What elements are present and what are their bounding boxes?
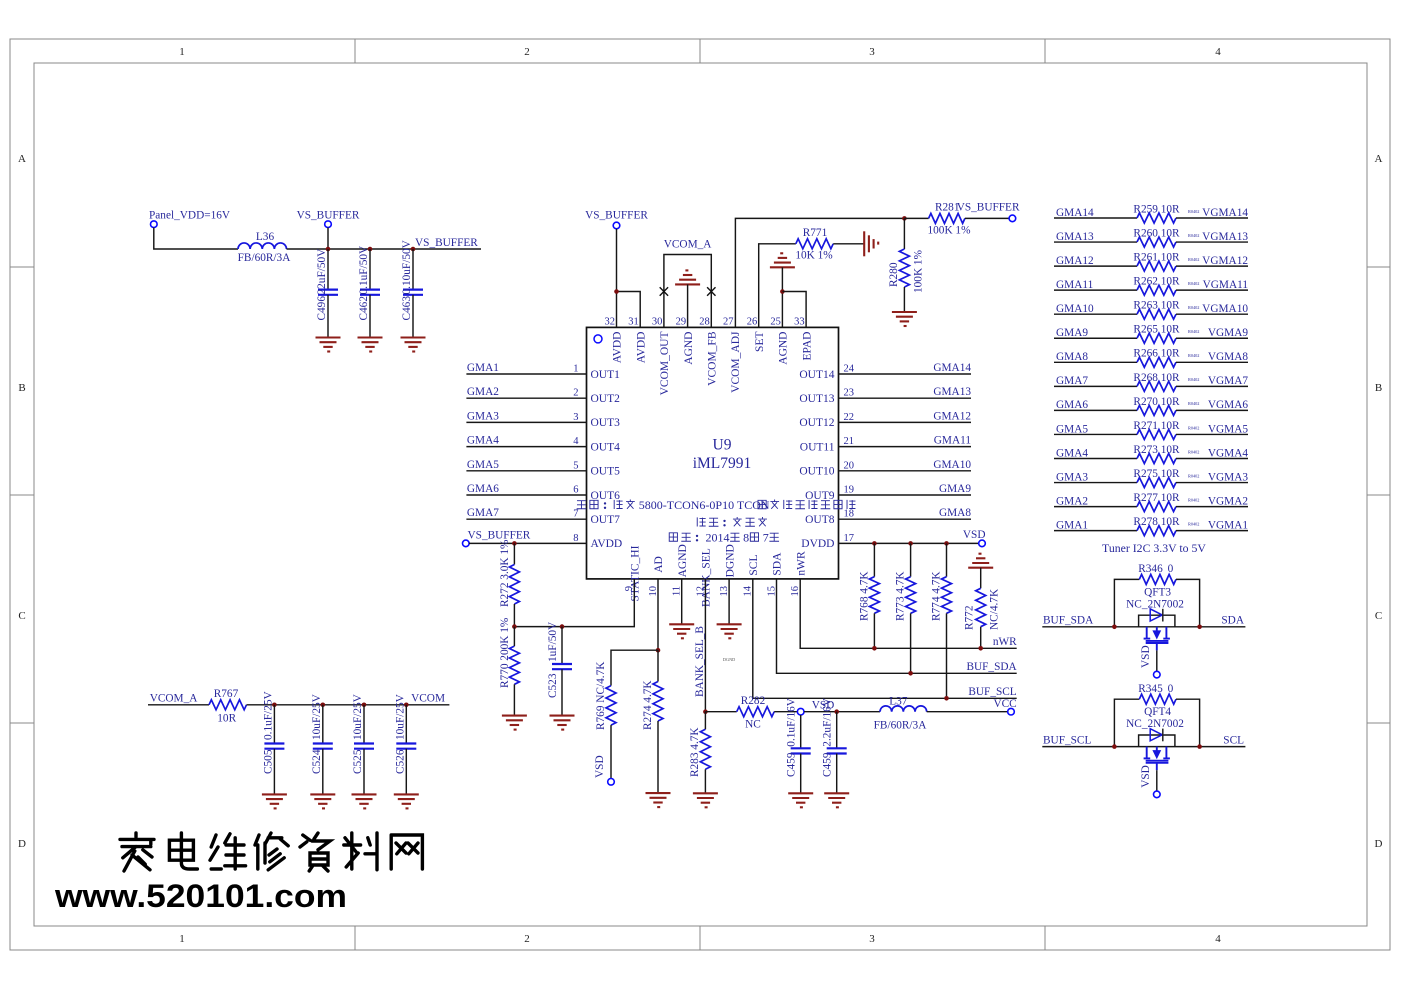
svg-text:C523: C523 <box>547 673 559 698</box>
svg-text:R0402: R0402 <box>1188 521 1199 526</box>
svg-text:D: D <box>18 838 26 850</box>
svg-text:NC: NC <box>745 719 761 731</box>
svg-text:R262 10R: R262 10R <box>1133 276 1180 288</box>
svg-text:4: 4 <box>1215 46 1221 58</box>
svg-text:VGMA1: VGMA1 <box>1208 519 1248 531</box>
svg-text:R0402: R0402 <box>1188 401 1199 406</box>
svg-text:OUT13: OUT13 <box>799 393 834 405</box>
svg-text:SDA: SDA <box>1221 615 1244 627</box>
svg-text:C459: C459 <box>822 752 834 777</box>
svg-text:VCOM_ADJ: VCOM_ADJ <box>730 331 742 393</box>
svg-text:SCL: SCL <box>748 555 760 576</box>
svg-text:DVDD: DVDD <box>801 538 834 550</box>
svg-text:22: 22 <box>844 412 855 423</box>
svg-text:VGMA2: VGMA2 <box>1208 495 1249 507</box>
svg-text:GMA2: GMA2 <box>1056 495 1088 507</box>
svg-text:DGND: DGND <box>724 544 736 577</box>
svg-text:100K 1%: 100K 1% <box>928 225 972 237</box>
svg-text:27: 27 <box>723 317 734 328</box>
svg-text:C496: C496 <box>316 296 328 321</box>
svg-text:R0402: R0402 <box>1188 257 1199 262</box>
svg-text:4: 4 <box>1215 933 1221 945</box>
svg-text:6: 6 <box>573 485 578 496</box>
svg-text:R773 4.7K: R773 4.7K <box>895 571 907 621</box>
svg-text:1: 1 <box>573 364 578 375</box>
svg-text:VGMA8: VGMA8 <box>1208 351 1249 363</box>
svg-text:VGMA7: VGMA7 <box>1208 375 1249 387</box>
svg-text:23: 23 <box>844 388 855 399</box>
svg-text:GMA12: GMA12 <box>933 410 971 422</box>
svg-text:2.2uF/16V: 2.2uF/16V <box>822 697 834 746</box>
svg-text:VGMA9: VGMA9 <box>1208 327 1249 339</box>
svg-text:7: 7 <box>573 509 578 520</box>
svg-text:VCOM_OUT: VCOM_OUT <box>659 332 671 396</box>
svg-text:OUT9: OUT9 <box>805 490 835 502</box>
svg-text:NC/4.7K: NC/4.7K <box>989 588 1001 630</box>
svg-text:31: 31 <box>628 317 639 328</box>
svg-text:15: 15 <box>766 586 777 597</box>
svg-text:10uF/25V: 10uF/25V <box>352 693 364 740</box>
svg-text:R259 10R: R259 10R <box>1133 203 1180 215</box>
svg-text:25: 25 <box>770 317 781 328</box>
svg-text:R0402: R0402 <box>1188 233 1199 238</box>
svg-text:R769 NC/4.7K: R769 NC/4.7K <box>595 661 607 730</box>
svg-text:8: 8 <box>743 531 749 545</box>
svg-text:C: C <box>18 610 25 622</box>
svg-text:100K 1%: 100K 1% <box>913 249 925 293</box>
svg-text:VCOM: VCOM <box>411 692 445 704</box>
svg-text:BANK_SEL: BANK_SEL <box>701 548 713 607</box>
svg-text:4: 4 <box>573 436 579 447</box>
svg-text:GMA12: GMA12 <box>1056 255 1094 267</box>
svg-text:R0402: R0402 <box>1188 305 1199 310</box>
svg-text:BANK_SEL_B: BANK_SEL_B <box>694 626 706 697</box>
svg-text:3: 3 <box>869 46 875 58</box>
svg-text:GMA8: GMA8 <box>939 507 971 519</box>
svg-text:R271 10R: R271 10R <box>1133 420 1180 432</box>
svg-text:R0402: R0402 <box>1188 425 1199 430</box>
svg-text:5800-TCON6-0P10 TCON: 5800-TCON6-0P10 TCON <box>639 498 770 512</box>
svg-text:SET: SET <box>754 332 766 352</box>
svg-text:GMA7: GMA7 <box>1056 375 1088 387</box>
svg-text:2: 2 <box>573 388 578 399</box>
svg-text:R768 4.7K: R768 4.7K <box>858 571 870 621</box>
svg-text:R0402: R0402 <box>1188 329 1199 334</box>
svg-text:A: A <box>1375 153 1383 165</box>
svg-text:C459: C459 <box>786 752 798 777</box>
svg-text:3: 3 <box>573 412 578 423</box>
svg-text:R280: R280 <box>888 262 900 287</box>
svg-text:VGMA11: VGMA11 <box>1203 279 1248 291</box>
svg-text:QFT4: QFT4 <box>1144 706 1171 718</box>
svg-text:R268 10R: R268 10R <box>1133 372 1180 384</box>
svg-text:AGND: AGND <box>677 544 689 577</box>
svg-text:GMA3: GMA3 <box>1056 471 1088 483</box>
svg-text:3: 3 <box>869 933 875 945</box>
svg-text:GMA1: GMA1 <box>467 362 499 374</box>
svg-text:AGND: AGND <box>683 332 695 365</box>
svg-text:10uF/25V: 10uF/25V <box>395 693 407 740</box>
svg-text:DGND: DGND <box>723 657 735 662</box>
svg-text:0.1uF/50V: 0.1uF/50V <box>358 245 370 294</box>
svg-text:9: 9 <box>624 586 635 591</box>
svg-text:OUT10: OUT10 <box>799 466 834 478</box>
svg-text:VGMA13: VGMA13 <box>1202 231 1248 243</box>
svg-text:BUF_SCL: BUF_SCL <box>968 686 1016 698</box>
svg-text:20: 20 <box>844 460 855 471</box>
svg-text:12: 12 <box>695 586 706 597</box>
svg-text:GMA3: GMA3 <box>467 410 499 422</box>
svg-text:BUF_SDA: BUF_SDA <box>1043 615 1094 627</box>
svg-text:A: A <box>18 153 26 165</box>
svg-text:OUT11: OUT11 <box>800 441 835 453</box>
svg-text:GMA7: GMA7 <box>467 507 499 519</box>
svg-text:nWR: nWR <box>993 636 1017 648</box>
svg-text:BUF_SDA: BUF_SDA <box>966 661 1017 673</box>
svg-text:EPAD: EPAD <box>801 332 813 361</box>
svg-text:7: 7 <box>763 531 769 545</box>
svg-text:16: 16 <box>790 586 801 597</box>
svg-text:Tuner I2C 3.3V to 5V: Tuner I2C 3.3V to 5V <box>1102 541 1206 555</box>
svg-text:10R: 10R <box>217 713 236 725</box>
svg-text:R274 4.7K: R274 4.7K <box>642 680 654 730</box>
svg-text:L37: L37 <box>889 696 908 708</box>
svg-text:1: 1 <box>179 933 185 945</box>
svg-text:R772: R772 <box>963 605 975 630</box>
svg-text:VCOM_A: VCOM_A <box>664 239 713 251</box>
svg-text:2: 2 <box>524 46 530 58</box>
svg-text:R270 10R: R270 10R <box>1133 396 1180 408</box>
svg-text:OUT8: OUT8 <box>805 514 835 526</box>
svg-text:GMA10: GMA10 <box>933 459 971 471</box>
svg-text:OUT4: OUT4 <box>591 441 621 453</box>
svg-text:GMA13: GMA13 <box>933 386 971 398</box>
svg-text:R261 10R: R261 10R <box>1133 252 1180 264</box>
svg-text:VGMA10: VGMA10 <box>1202 303 1248 315</box>
svg-text:B: B <box>18 382 25 394</box>
svg-text:OUT3: OUT3 <box>591 417 621 429</box>
svg-text:R0402: R0402 <box>1188 209 1199 214</box>
svg-text:0: 0 <box>1168 683 1174 695</box>
svg-text:10: 10 <box>648 586 659 597</box>
svg-text:VCOM_FB: VCOM_FB <box>707 331 719 386</box>
svg-text:0: 0 <box>1168 563 1174 575</box>
svg-text:GMA5: GMA5 <box>1056 423 1088 435</box>
svg-text:C: C <box>1375 610 1382 622</box>
svg-text:R260 10R: R260 10R <box>1133 227 1180 239</box>
svg-text:VSD: VSD <box>594 755 606 778</box>
svg-text:R770 200K 1%: R770 200K 1% <box>499 617 511 688</box>
svg-text:R0402: R0402 <box>1188 281 1199 286</box>
svg-text:26: 26 <box>747 317 758 328</box>
svg-text:iML7991: iML7991 <box>693 455 752 472</box>
svg-text:33: 33 <box>794 317 805 328</box>
svg-text:R774 4.7K: R774 4.7K <box>930 571 942 621</box>
svg-text:VS_BUFFER: VS_BUFFER <box>585 210 648 222</box>
svg-text:C463: C463 <box>401 296 413 321</box>
svg-text:R0402: R0402 <box>1188 473 1199 478</box>
svg-text:AVDD: AVDD <box>591 538 623 550</box>
svg-text:VS_BUFFER: VS_BUFFER <box>957 202 1020 214</box>
svg-text:VCC: VCC <box>993 698 1016 710</box>
svg-text:VGMA12: VGMA12 <box>1202 255 1248 267</box>
svg-text:GMA14: GMA14 <box>1056 207 1094 219</box>
svg-text:C462: C462 <box>358 296 370 321</box>
svg-text:AVDD: AVDD <box>635 332 647 364</box>
svg-text:AGND: AGND <box>778 332 790 365</box>
svg-text:10K 1%: 10K 1% <box>795 250 833 262</box>
svg-text:VSD: VSD <box>1140 645 1152 668</box>
svg-text:R771: R771 <box>803 227 827 239</box>
svg-text:GMA11: GMA11 <box>1056 279 1093 291</box>
svg-text:22uF/50V: 22uF/50V <box>316 248 328 295</box>
svg-text:VGMA3: VGMA3 <box>1208 471 1249 483</box>
svg-text:VS_BUFFER: VS_BUFFER <box>297 210 360 222</box>
svg-text:GMA11: GMA11 <box>934 435 971 447</box>
svg-text:R265 10R: R265 10R <box>1133 324 1180 336</box>
svg-text:FB/60R/3A: FB/60R/3A <box>238 252 292 264</box>
svg-text:OUT7: OUT7 <box>591 514 621 526</box>
svg-text:R273 10R: R273 10R <box>1133 444 1180 456</box>
svg-text:OUT2: OUT2 <box>591 393 621 405</box>
svg-text:L36: L36 <box>256 231 275 243</box>
svg-text:0.10uF/50V: 0.10uF/50V <box>401 239 413 294</box>
svg-text:R0402: R0402 <box>1188 497 1199 502</box>
svg-text:R263 10R: R263 10R <box>1133 300 1180 312</box>
svg-text:VS_BUFFER: VS_BUFFER <box>415 237 478 249</box>
svg-text:SCL: SCL <box>1223 734 1244 746</box>
svg-text:VGMA14: VGMA14 <box>1202 207 1248 219</box>
svg-text:R283 4.7K: R283 4.7K <box>689 727 701 777</box>
svg-text:D: D <box>1375 838 1383 850</box>
svg-text:29: 29 <box>676 317 687 328</box>
svg-text:R275 10R: R275 10R <box>1133 468 1180 480</box>
svg-text:U9: U9 <box>713 437 732 454</box>
svg-text:2014: 2014 <box>705 531 729 545</box>
svg-text:VSD: VSD <box>963 529 986 541</box>
svg-text:11: 11 <box>672 586 683 596</box>
svg-text:21: 21 <box>844 436 855 447</box>
svg-text:13: 13 <box>719 586 730 597</box>
svg-text:VGMA6: VGMA6 <box>1208 399 1249 411</box>
svg-text:R0402: R0402 <box>1188 449 1199 454</box>
svg-text:C505: C505 <box>263 749 275 774</box>
svg-text:R346: R346 <box>1138 563 1163 575</box>
svg-text:GMA10: GMA10 <box>1056 303 1094 315</box>
svg-text:C525: C525 <box>352 749 364 774</box>
svg-text:OUT12: OUT12 <box>799 417 834 429</box>
svg-text:R266 10R: R266 10R <box>1133 348 1180 360</box>
svg-text:GMA6: GMA6 <box>467 483 499 495</box>
svg-text:17: 17 <box>844 533 855 544</box>
svg-text:C526: C526 <box>395 749 407 774</box>
svg-text:GMA13: GMA13 <box>1056 231 1094 243</box>
svg-text:GMA1: GMA1 <box>1056 519 1088 531</box>
svg-text:GMA5: GMA5 <box>467 459 499 471</box>
svg-text:GMA6: GMA6 <box>1056 399 1088 411</box>
svg-text:GMA9: GMA9 <box>1056 327 1088 339</box>
svg-text:VGMA5: VGMA5 <box>1208 423 1249 435</box>
svg-text:B: B <box>1375 382 1382 394</box>
svg-text:SDA: SDA <box>772 552 784 576</box>
svg-text:1uF/50V: 1uF/50V <box>547 621 559 662</box>
svg-text:FB/60R/3A: FB/60R/3A <box>874 720 928 732</box>
svg-text:2: 2 <box>524 933 530 945</box>
svg-text:32: 32 <box>605 317 616 328</box>
svg-text:GMA9: GMA9 <box>939 483 971 495</box>
svg-text:AD: AD <box>653 556 665 573</box>
svg-text:R0402: R0402 <box>1188 353 1199 358</box>
svg-text:BUF_SCL: BUF_SCL <box>1043 734 1091 746</box>
svg-text:nWR: nWR <box>795 551 807 576</box>
svg-text:VCOM_A: VCOM_A <box>150 692 199 704</box>
svg-text:www.520101.com: www.520101.com <box>54 878 347 914</box>
svg-text:30: 30 <box>652 317 663 328</box>
svg-text:OUT1: OUT1 <box>591 369 621 381</box>
svg-text:0.1uF/25V: 0.1uF/25V <box>263 691 275 740</box>
svg-text:NC_2N7002: NC_2N7002 <box>1126 598 1184 610</box>
svg-text:OUT14: OUT14 <box>799 369 834 381</box>
svg-text:5: 5 <box>573 460 578 471</box>
svg-text:10uF/25V: 10uF/25V <box>311 693 323 740</box>
svg-text:R767: R767 <box>214 688 239 700</box>
svg-text:R345: R345 <box>1138 683 1163 695</box>
svg-text:VGMA4: VGMA4 <box>1208 447 1249 459</box>
svg-text:STATIC_HI: STATIC_HI <box>630 545 642 601</box>
svg-text:R282: R282 <box>741 695 766 707</box>
svg-text:GMA14: GMA14 <box>933 362 971 374</box>
svg-text:OUT5: OUT5 <box>591 466 621 478</box>
svg-text:GMA4: GMA4 <box>1056 447 1088 459</box>
svg-text:GMA8: GMA8 <box>1056 351 1088 363</box>
svg-text:C524: C524 <box>311 749 323 774</box>
svg-text:19: 19 <box>844 485 855 496</box>
svg-text:R0402: R0402 <box>1188 377 1199 382</box>
svg-text:8: 8 <box>573 533 578 544</box>
svg-text:GMA2: GMA2 <box>467 386 499 398</box>
svg-text:R278 10R: R278 10R <box>1133 516 1180 528</box>
svg-text:28: 28 <box>699 317 710 328</box>
svg-text:18: 18 <box>844 509 855 520</box>
svg-text:QFT3: QFT3 <box>1144 586 1171 598</box>
svg-text:1: 1 <box>179 46 185 58</box>
svg-text:NC_2N7002: NC_2N7002 <box>1126 718 1184 730</box>
svg-text:R277 10R: R277 10R <box>1133 492 1180 504</box>
svg-text:VSD: VSD <box>1140 765 1152 788</box>
svg-text:14: 14 <box>743 585 754 596</box>
svg-text:Panel_VDD=16V: Panel_VDD=16V <box>149 210 231 222</box>
svg-text:AVDD: AVDD <box>612 332 624 364</box>
svg-text:GMA4: GMA4 <box>467 435 499 447</box>
svg-text:24: 24 <box>844 364 855 375</box>
svg-text:R272 3.0K 1%: R272 3.0K 1% <box>499 539 511 607</box>
svg-text:0.1uF/16V: 0.1uF/16V <box>786 697 798 746</box>
